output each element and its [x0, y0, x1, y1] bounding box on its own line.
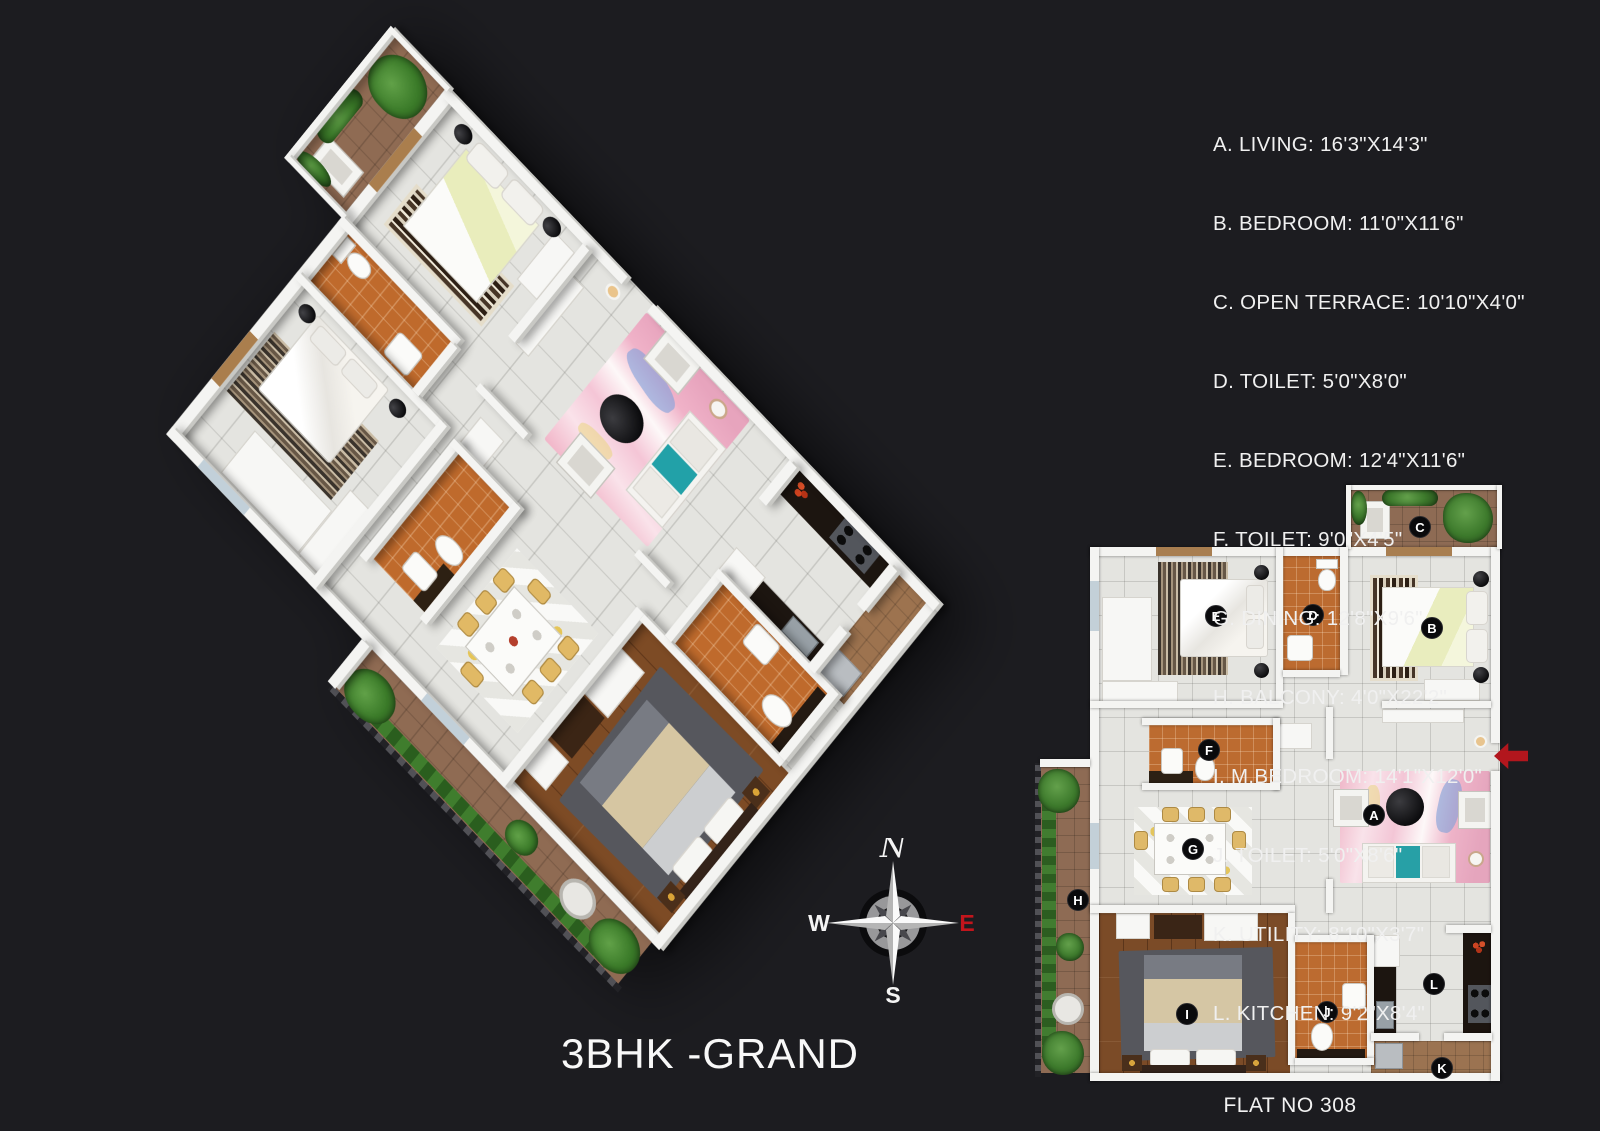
legend-item: E. BEDROOM: 12'4"X11'6": [1213, 448, 1525, 474]
legend-item: B. BEDROOM: 11'0"X11'6": [1213, 211, 1525, 237]
wall: [1040, 759, 1090, 767]
flat-number: FLAT NO 308: [1140, 1094, 1440, 1118]
dining-chair: [1162, 807, 1179, 822]
legend-item: G. DINING: 12'8"X9'6": [1213, 606, 1525, 632]
room-legend: A. LIVING: 16'3"X14'3" B. BEDROOM: 11'0"…: [1213, 79, 1525, 1080]
compass-rose: N W E S: [808, 838, 978, 1008]
legend-item: I. M.BEDROOM: 14'1"X12'0": [1213, 764, 1525, 790]
legend-item: K. UTILITY: 8'10"X3'7": [1213, 922, 1525, 948]
window: [1156, 547, 1212, 556]
floor-plan-sheet: A B C D E F G H I J K L: [0, 0, 1600, 1131]
dining-chair: [1162, 877, 1179, 892]
tv-console: [1154, 915, 1202, 939]
railing: [1035, 763, 1041, 1077]
room-badge: I: [1176, 1003, 1198, 1025]
sink: [1161, 748, 1183, 774]
legend-item: D. TOILET: 5'0"X8'0": [1213, 369, 1525, 395]
legend-item: C. OPEN TERRACE: 10'10"X4'0": [1213, 290, 1525, 316]
wardrobe: [1116, 913, 1150, 939]
legend-item: L. KITCHEN: 9'2"X8'4": [1213, 1001, 1525, 1027]
legend-item: J. TOILET: 5'0"X8'6": [1213, 843, 1525, 869]
page-title: 3BHK -GRAND: [490, 1030, 930, 1078]
room-badge: H: [1067, 889, 1089, 911]
legend-item: A. LIVING: 16'3"X14'3": [1213, 132, 1525, 158]
dining-chair: [1188, 807, 1205, 822]
legend-item: F. TOILET: 9'0"X4'5": [1213, 527, 1525, 553]
compass-west-label: W: [808, 910, 830, 936]
dining-chair: [1134, 831, 1148, 850]
room-badge: G: [1182, 838, 1204, 860]
dining-chair: [1188, 877, 1205, 892]
compass-star: [827, 861, 959, 985]
balcony-chair: [1052, 993, 1084, 1025]
window: [1090, 823, 1099, 869]
hedge: [1042, 775, 1056, 1063]
wardrobe: [1102, 597, 1152, 681]
palm-plant: [1038, 769, 1080, 813]
compass-south-label: S: [885, 982, 900, 1008]
compass-north-label: N: [879, 838, 908, 865]
palm-plant: [1042, 1031, 1084, 1075]
bush: [1056, 933, 1084, 961]
nightstand: [1122, 1055, 1142, 1071]
window: [1090, 581, 1099, 631]
compass-east-label: E: [959, 910, 974, 936]
legend-item: H. BALCONY: 4'0"X22'2": [1213, 685, 1525, 711]
